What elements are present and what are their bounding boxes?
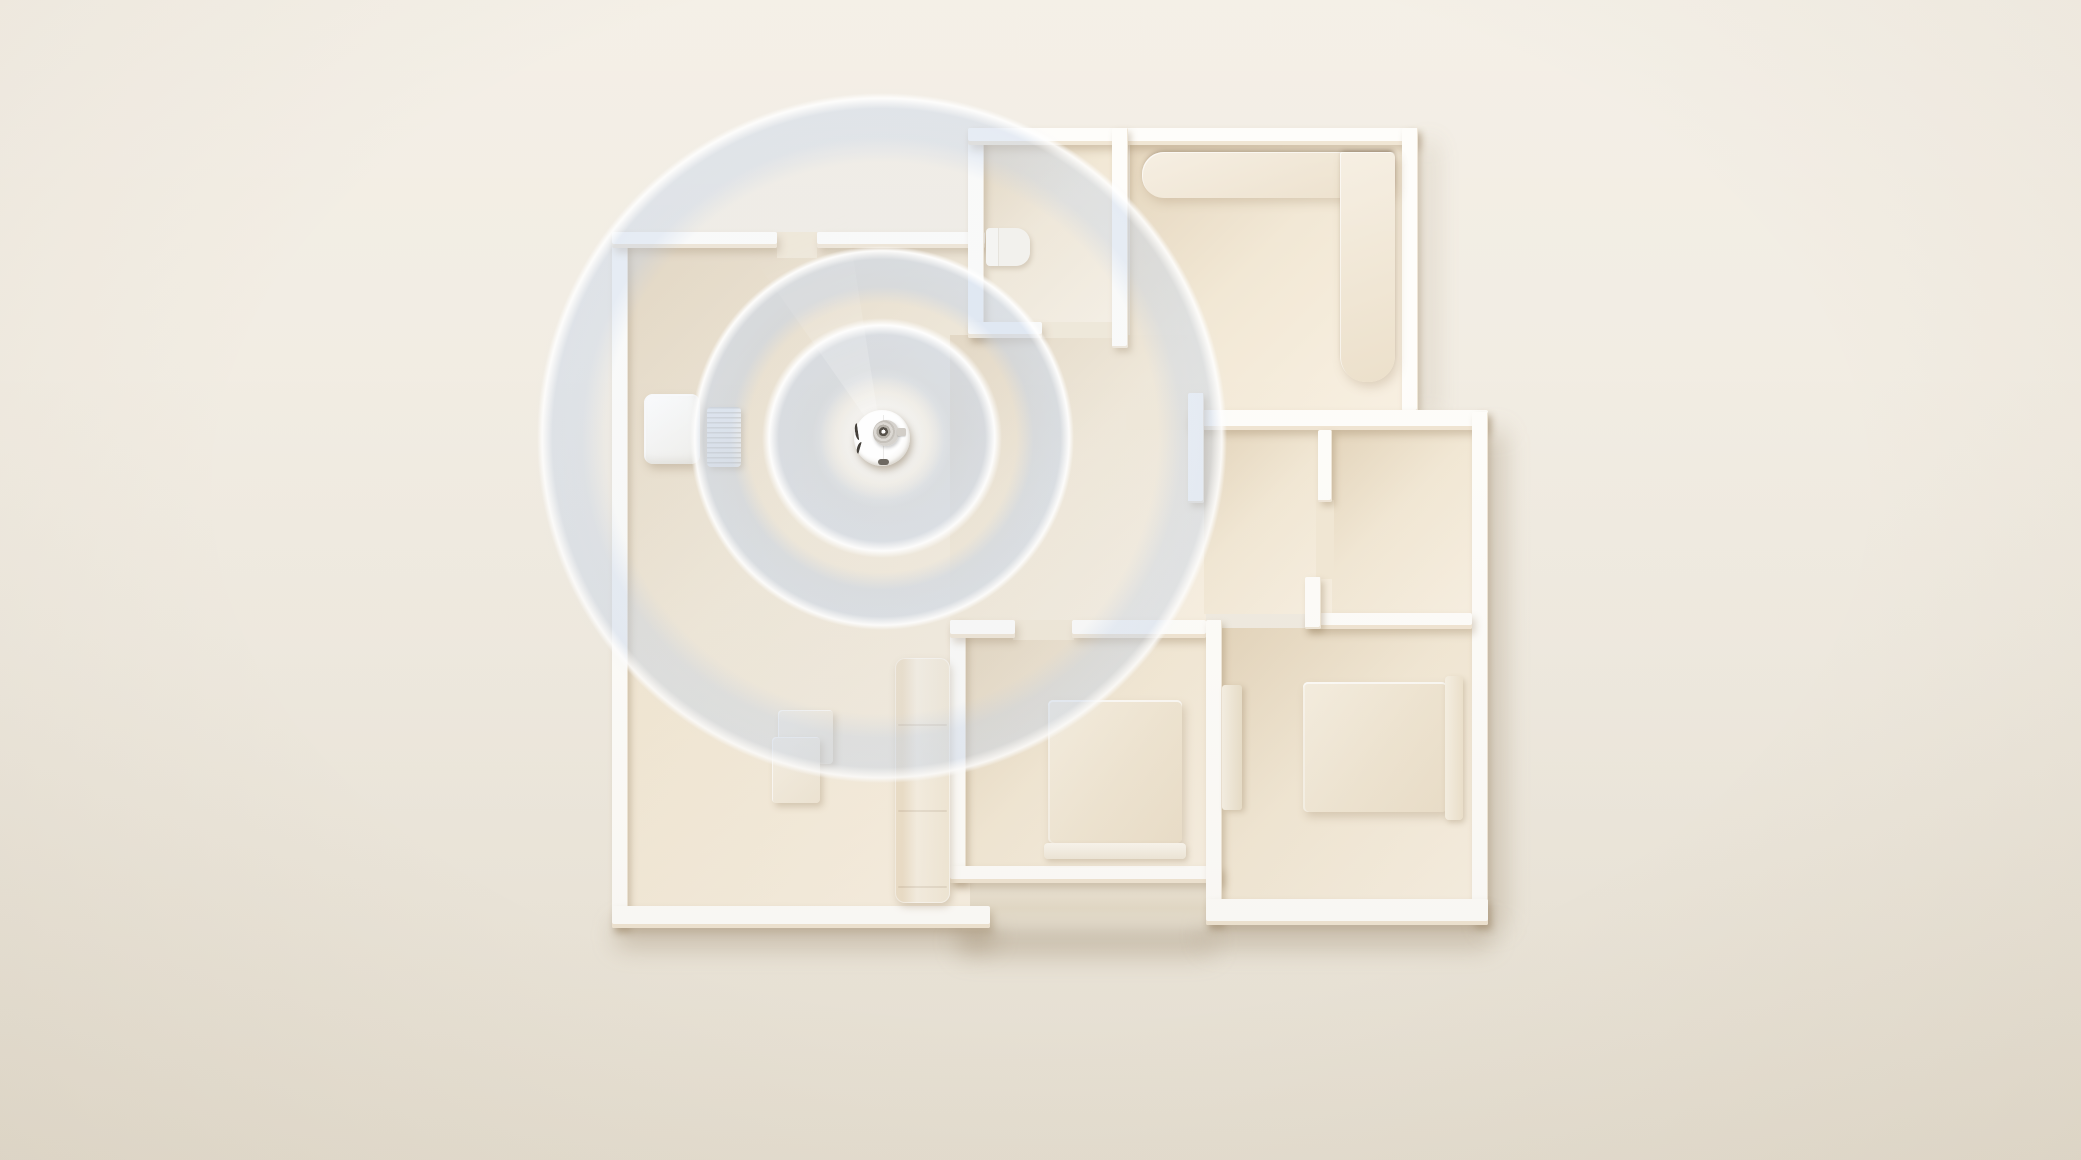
ground-shadow-lounge-right <box>1420 140 1436 420</box>
toilet <box>986 228 1030 266</box>
wall-study-lip <box>1305 577 1321 629</box>
wall-living-top-west <box>612 232 777 248</box>
wall-bathroom-bottom <box>968 322 1042 338</box>
robot-bumper-sensor <box>856 442 865 456</box>
wall-bathroom-right <box>1112 128 1128 348</box>
wall-bedroom-middle-bottom <box>950 866 1222 883</box>
sofa-cushion-seam <box>898 810 946 812</box>
wall-outer-right <box>1472 412 1488 925</box>
robot-rear-sensor <box>878 459 889 465</box>
robot-button <box>897 428 906 436</box>
floor-study <box>1332 428 1474 615</box>
charging-dock <box>644 394 700 464</box>
wall-study-bottom <box>1305 613 1472 629</box>
wall-closet-nook <box>1318 430 1332 502</box>
wall-bedroom-right-left <box>1206 620 1222 925</box>
floor-hallway <box>950 335 1206 622</box>
floor-balcony-threshold <box>777 232 817 258</box>
floor-study-door <box>1316 500 1334 579</box>
floor-bedroom-middle-door <box>1013 620 1074 640</box>
sofa-cushion-seam <box>898 886 946 888</box>
wall-living-bottom <box>612 906 990 928</box>
robot-vacuum <box>854 410 910 466</box>
wall-top-main <box>968 128 1418 145</box>
wall-bedroom-right-bottom <box>1206 899 1488 925</box>
wall-lounge-right <box>1402 128 1418 412</box>
bed-middle-footboard <box>1044 843 1186 859</box>
bed-middle <box>1048 700 1182 843</box>
bed-right <box>1303 682 1447 812</box>
floor-bathroom-door <box>1040 322 1114 338</box>
coffee-table-lower <box>772 737 820 803</box>
bed-right-headboard <box>1445 676 1463 820</box>
robot-bumper-sensor <box>854 423 862 440</box>
robot-lidar-turret-icon <box>873 420 899 446</box>
wall-living-left <box>612 232 628 928</box>
wall-living-top-east <box>817 232 985 248</box>
wall-bedroom-middle-top-west <box>950 620 1015 638</box>
wall-bedroom-middle-top-east <box>1072 620 1206 638</box>
wall-bathroom-left <box>968 128 984 338</box>
floorplan-render <box>0 0 2081 1160</box>
dock-pad <box>707 407 741 467</box>
entry-floor <box>962 880 1210 932</box>
wall-bedroom-middle-left <box>950 620 966 883</box>
sofa-cushion-seam <box>898 724 946 726</box>
living-sofa <box>895 658 950 903</box>
wardrobe <box>1222 685 1242 810</box>
wall-mid-horizontal <box>1188 410 1488 430</box>
floor-lounge-opening <box>1126 410 1190 430</box>
l-shaped-sofa-side <box>1340 152 1395 382</box>
wall-jamb-hallway <box>1188 393 1204 503</box>
